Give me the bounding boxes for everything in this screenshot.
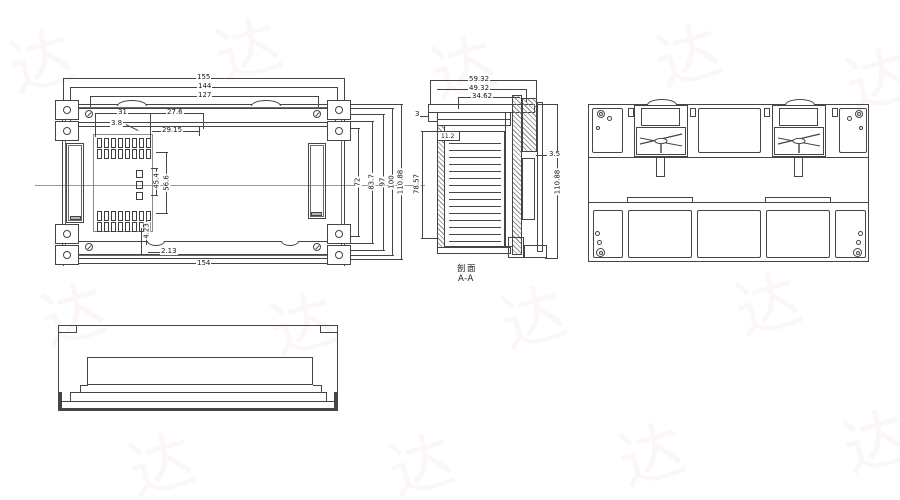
terminal-cell [118, 222, 123, 232]
watermark-glyph: 达 [607, 398, 694, 500]
foot-pad [58, 392, 62, 410]
section-sublabel: A-A [458, 274, 474, 284]
heatsink-fins [449, 143, 501, 242]
dim-127: 127 [197, 92, 212, 99]
dim-110-88-section: 110.88 [555, 169, 562, 196]
ext-line [90, 96, 91, 107]
dim-83-7: 83.7 [369, 173, 376, 191]
watermark-glyph: 达 [644, 0, 731, 105]
ext-line [526, 89, 527, 102]
clip-window [779, 108, 818, 126]
terminal-cell [104, 149, 109, 159]
terminal-cell [104, 211, 109, 221]
ext-line [156, 152, 168, 153]
watermark-glyph: 达 [117, 408, 204, 500]
watermark-glyph: 达 [419, 11, 506, 117]
terminal-row [97, 211, 151, 221]
dim-49-32: 49.32 [468, 85, 490, 92]
terminal-cell [125, 138, 130, 148]
terminal-cell [125, 222, 130, 232]
ext-line [199, 126, 200, 136]
ext-line [536, 104, 558, 105]
screw-head-icon [85, 243, 93, 251]
corner-hole [859, 126, 863, 130]
screw-head-icon [85, 110, 93, 118]
dim-3-5: 3.5 [548, 151, 561, 158]
terminal-cell [139, 211, 144, 221]
ext-line [345, 250, 385, 251]
ext-line [421, 238, 437, 239]
watermark-glyph: 达 [377, 408, 464, 500]
leader-line [148, 252, 160, 253]
terminal-cell [136, 192, 143, 200]
corner-notch [76, 325, 77, 333]
corner-notch [320, 332, 338, 333]
dim-2-13: 2.13 [160, 248, 178, 255]
ear-hole [335, 106, 343, 114]
engineering-drawing: 达 达 达 达 达 达 达 达 达 达 达 达 达 [0, 0, 900, 500]
ext-line [150, 113, 151, 140]
corner-hole [847, 116, 852, 121]
rear-window [697, 210, 761, 258]
step-line [70, 392, 81, 393]
vent-slot [832, 108, 838, 117]
step-line [313, 385, 321, 386]
display-window [87, 357, 313, 385]
corner-hole [607, 116, 612, 121]
watermark-glyph: 达 [831, 385, 900, 491]
ear-hole [335, 251, 343, 259]
ear-hole [335, 230, 343, 238]
section-bottom-plate [437, 247, 511, 254]
connector-column [136, 170, 143, 200]
ear-hole [63, 127, 71, 135]
ext-line [458, 97, 459, 109]
terminal-cell [111, 222, 116, 232]
terminal-row [97, 138, 151, 148]
vent-slot [764, 108, 770, 117]
clip-slot [627, 197, 693, 203]
dim-144: 144 [197, 83, 212, 90]
din-rail [522, 158, 535, 220]
latch-bump [647, 99, 677, 105]
terminal-cell [139, 138, 144, 148]
corner-hole [599, 112, 603, 116]
corner-hole [858, 231, 863, 236]
screw-head-icon [313, 243, 321, 251]
ext-line [156, 213, 168, 214]
dim-29-15: 29.15 [161, 127, 183, 134]
dim-59-32: 59.32 [468, 76, 490, 83]
clip-stem [794, 157, 803, 177]
hatch-wall [512, 95, 522, 255]
corner-notch [58, 332, 76, 333]
ear-hole [63, 230, 71, 238]
din-clip-bracket [508, 237, 524, 258]
panel-line [589, 157, 868, 158]
latch-bump [117, 100, 147, 106]
terminal-cell [118, 149, 123, 159]
dim-31: 31 [117, 109, 128, 116]
step-line [62, 401, 334, 402]
ext-line [95, 113, 96, 137]
spring-clip-icon [638, 129, 684, 153]
ear-hole [335, 127, 343, 135]
terminal-cell [97, 138, 102, 148]
terminal-cell [97, 211, 102, 221]
dim-line [422, 131, 423, 238]
foot-pad [334, 392, 338, 410]
ext-line [345, 108, 394, 109]
terminal-cell [132, 211, 137, 221]
terminal-cell [104, 222, 109, 232]
din-rail-edge [537, 102, 543, 252]
terminal-cell [111, 211, 116, 221]
ext-line [545, 258, 558, 259]
terminal-row [97, 149, 151, 159]
terminal-cell [136, 181, 143, 189]
ext-line [151, 168, 158, 169]
terminal-cell [97, 149, 102, 159]
slot-key [70, 216, 81, 220]
clip-stem [656, 157, 665, 177]
terminal-cell [132, 222, 137, 232]
dim-72: 72 [355, 177, 362, 188]
terminal-cell [118, 211, 123, 221]
leader-line [536, 155, 547, 156]
step-line [316, 392, 327, 393]
clip-slot [765, 197, 831, 203]
dim-78-57: 78.57 [414, 173, 421, 195]
corner-hole [596, 126, 600, 130]
terminal-cell [132, 138, 137, 148]
section-label: 剖面 [457, 264, 477, 274]
ext-line [430, 80, 431, 104]
terminal-cell [111, 149, 116, 159]
panel-line [437, 119, 511, 120]
terminal-cell [125, 149, 130, 159]
panel-line [70, 254, 336, 255]
corner-hole [595, 231, 600, 236]
spring-clip-icon [776, 129, 822, 153]
side-slot-inner [68, 145, 82, 221]
dim-3: 3 [414, 111, 420, 118]
ext-line [151, 195, 158, 196]
corner-hole [597, 240, 602, 245]
terminal-cell [97, 222, 102, 232]
dim-3-8: 3.8 [110, 120, 123, 127]
corner-hole [599, 251, 603, 255]
ext-line [345, 259, 403, 260]
ext-line [345, 114, 385, 115]
dim-34-62: 34.62 [471, 93, 493, 100]
dim-45-4: 45.4 [154, 172, 161, 190]
terminal-cell [136, 170, 143, 178]
ext-line [536, 80, 537, 102]
dim-27-6: 27.6 [166, 109, 184, 116]
dim-155: 155 [196, 74, 211, 81]
ext-line [318, 96, 319, 107]
rear-window [628, 210, 692, 258]
vent-slot [690, 108, 696, 117]
watermark-glyph: 达 [489, 261, 576, 367]
terminal-cell [139, 149, 144, 159]
ext-line [345, 255, 394, 256]
corner-hole [857, 112, 861, 116]
corner-notch [320, 325, 321, 333]
ear-hole [63, 106, 71, 114]
terminal-cell [146, 149, 151, 159]
watermark-glyph: 达 [204, 0, 291, 99]
dim-110-88: 110.88 [398, 169, 405, 196]
watermark-glyph: 达 [724, 248, 811, 354]
dim-97: 97 [380, 177, 387, 188]
dim-4-23: 4.23 [144, 222, 151, 240]
ext-line [421, 131, 437, 132]
terminal-cell [111, 138, 116, 148]
slot-key [311, 212, 322, 216]
latch-bump [785, 99, 815, 105]
rear-window [766, 210, 830, 258]
step-line [80, 385, 88, 386]
terminal-cell [118, 138, 123, 148]
side-slot-inner [310, 145, 324, 217]
corner-hole [856, 251, 860, 255]
rear-window [698, 108, 761, 153]
ext-line [345, 104, 403, 105]
dim-154: 154 [196, 260, 211, 267]
terminal-cell [104, 138, 109, 148]
clip-window [641, 108, 680, 126]
dim-line [95, 113, 203, 114]
ext-line [203, 113, 204, 129]
dim-100: 100 [389, 174, 396, 189]
terminal-cell [132, 149, 137, 159]
din-clip-step [524, 245, 547, 258]
ear-hole [63, 251, 71, 259]
din-rail-block [522, 98, 537, 152]
step-line [326, 392, 327, 401]
screw-head-icon [313, 110, 321, 118]
step-line [70, 392, 71, 401]
corner-hole [856, 240, 861, 245]
terminal-cell [125, 211, 130, 221]
latch-bump [251, 100, 281, 106]
dim-56-6: 56.6 [164, 174, 171, 192]
step-line [80, 392, 322, 393]
dim-11-2: 11.2 [440, 133, 455, 140]
